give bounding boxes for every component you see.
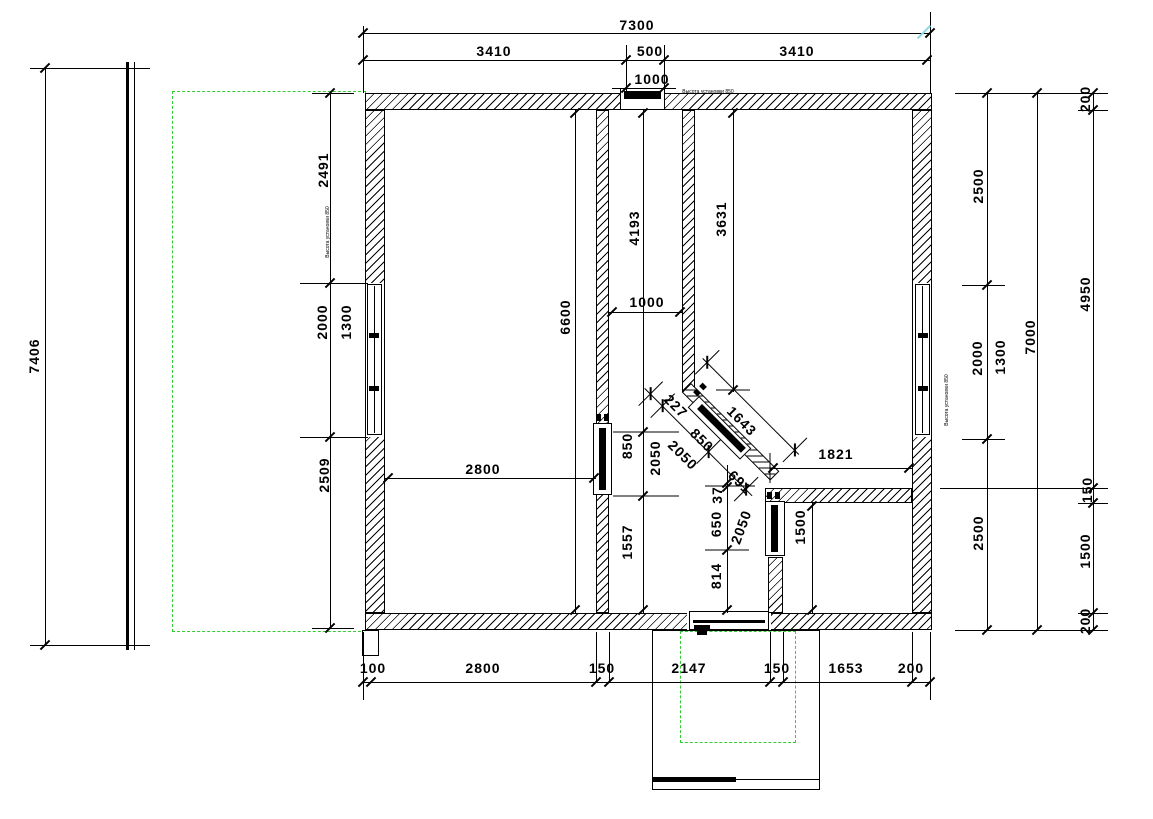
dim-label-right-wall-bottom: 200 bbox=[1077, 608, 1093, 634]
dim-label-left-lower: 2509 bbox=[316, 457, 332, 492]
dim-line-right-room-width bbox=[770, 468, 912, 469]
dim-label-corridor-lower: 1557 bbox=[619, 524, 635, 559]
wall-interior-b bbox=[682, 110, 695, 392]
wall-bottom bbox=[365, 613, 932, 630]
dim-line-right-column-2 bbox=[1037, 93, 1038, 630]
dim-label-left-overall: 7406 bbox=[26, 338, 42, 373]
dim-label-door-a-height: 2050 bbox=[647, 440, 663, 475]
dim-label-bottom-6: 1653 bbox=[828, 660, 863, 676]
dim-label-top-left: 3410 bbox=[476, 43, 511, 59]
dim-label-corridor-upper: 4193 bbox=[626, 210, 642, 245]
dim-label-left-upper: 2491 bbox=[315, 152, 331, 187]
dim-label-top-overall: 7300 bbox=[619, 17, 654, 33]
dim-label-bottom-5: 150 bbox=[764, 660, 790, 676]
dim-label-right-total: 7000 bbox=[1022, 319, 1038, 354]
door-a-hinge-icon-2 bbox=[604, 414, 609, 421]
dim-label-left-room-height: 6600 bbox=[557, 299, 573, 334]
dim-label-bottom-passage: 814 bbox=[708, 563, 724, 589]
dim-label-diag-seg2: 691 bbox=[725, 467, 755, 497]
dim-label-top-center: 500 bbox=[637, 43, 663, 59]
dim-line-corridor-width bbox=[609, 312, 682, 313]
door-c-hinge-icon-2 bbox=[775, 492, 780, 499]
ext-line bbox=[30, 645, 150, 646]
dim-label-right-span-main: 4950 bbox=[1077, 276, 1093, 311]
dim-label-bottom-7: 200 bbox=[898, 660, 924, 676]
dim-label-left-window: 1300 bbox=[338, 304, 354, 339]
dim-label-left-window-opening: 2000 bbox=[314, 304, 330, 339]
door-porch-hinge-icon bbox=[694, 625, 710, 629]
door-c-hinge-icon bbox=[767, 492, 772, 499]
dim-label-right-room-height: 3631 bbox=[713, 201, 729, 236]
dim-line-right-room-height bbox=[733, 110, 734, 392]
wall-corner-pier bbox=[362, 630, 379, 656]
dim-label-corridor-width: 1000 bbox=[629, 294, 664, 310]
annotation-right: Высота установки 850 bbox=[944, 374, 950, 425]
dim-label-right-lower: 2500 bbox=[970, 515, 986, 550]
left-terrace-dashed-outline bbox=[172, 91, 366, 632]
ext-line bbox=[930, 632, 931, 700]
dim-label-right-room-width: 1821 bbox=[818, 446, 853, 462]
ext-line bbox=[783, 438, 808, 463]
dim-label-door-c-height: 2050 bbox=[727, 508, 754, 547]
wall-interior-c bbox=[768, 557, 783, 613]
porch-step-bar bbox=[652, 777, 736, 782]
dim-label-top-right: 3410 bbox=[779, 43, 814, 59]
dim-line-corridor-chain bbox=[643, 110, 644, 613]
window-left-mullion bbox=[369, 333, 379, 338]
dim-label-door-c-width: 650 bbox=[708, 511, 724, 537]
dim-line-right-column-3 bbox=[1093, 93, 1094, 630]
annotation-top: Высота установки 850 bbox=[682, 89, 733, 95]
dim-label-left-room-width: 2800 bbox=[465, 461, 500, 477]
dim-line-right-column-1 bbox=[987, 93, 988, 630]
floor-plan-canvas: 7300 3410 500 3410 1000 Высота установки… bbox=[0, 0, 1153, 819]
dim-line-left-room-height bbox=[575, 110, 576, 613]
dim-label-right-window: 1300 bbox=[992, 339, 1008, 374]
adjacent-wall-line-2 bbox=[134, 62, 135, 650]
vent-bar bbox=[624, 91, 661, 99]
dim-label-bottom-1: 100 bbox=[360, 660, 386, 676]
dim-line-left-overall bbox=[45, 68, 46, 645]
dim-label-bottom-2: 2800 bbox=[465, 660, 500, 676]
door-porch-hinge-icon-2 bbox=[697, 631, 707, 635]
door-porch-leaf bbox=[693, 620, 765, 623]
dim-line-top-overall bbox=[363, 33, 930, 34]
ext-line bbox=[613, 496, 679, 497]
ext-line bbox=[312, 93, 354, 94]
dim-line-bottom bbox=[363, 682, 930, 683]
window-right-glazing-line bbox=[922, 286, 923, 433]
dim-label-right-wall-mid: 150 bbox=[1079, 477, 1095, 503]
dim-label-right-window-opening: 2000 bbox=[969, 340, 985, 375]
window-left-mullion-2 bbox=[369, 386, 379, 391]
dim-line-top-segments bbox=[363, 60, 930, 61]
ext-line bbox=[300, 437, 368, 438]
door-a-hinge-icon bbox=[596, 414, 601, 421]
window-left-glazing-line bbox=[374, 286, 375, 433]
wall-interior-d bbox=[765, 488, 912, 503]
adjacent-wall-line bbox=[126, 62, 129, 650]
dim-line-left-room-width bbox=[385, 478, 596, 479]
window-right-mullion-2 bbox=[918, 386, 928, 391]
dim-label-right-wall-top: 200 bbox=[1077, 86, 1093, 112]
dim-label-door-a-width: 850 bbox=[619, 433, 635, 459]
ext-line bbox=[638, 381, 663, 406]
dim-label-top-vent: 1000 bbox=[634, 71, 669, 87]
door-diagonal-hinge-icon-2 bbox=[699, 383, 707, 391]
dim-line-diagonal-wall bbox=[702, 358, 799, 455]
ext-line bbox=[300, 283, 368, 284]
door-c-leaf bbox=[771, 505, 778, 552]
dim-label-small-room-height: 1500 bbox=[792, 509, 808, 544]
dim-label-gap-small: 37 bbox=[709, 486, 725, 504]
ext-line bbox=[312, 628, 354, 629]
wall-interior-a bbox=[596, 110, 609, 613]
dim-label-bottom-4: 2147 bbox=[671, 660, 706, 676]
ext-line bbox=[695, 350, 720, 375]
dim-label-right-lower-room: 1500 bbox=[1077, 533, 1093, 568]
ext-line bbox=[30, 68, 150, 69]
dim-label-bottom-3: 150 bbox=[589, 660, 615, 676]
dim-line-small-room bbox=[812, 503, 813, 613]
door-a-leaf bbox=[599, 428, 606, 490]
dim-label-right-upper: 2500 bbox=[970, 168, 986, 203]
annotation-left: Высота установки 850 bbox=[325, 206, 331, 257]
dim-line-top-vent bbox=[612, 88, 676, 89]
ext-line bbox=[930, 12, 931, 93]
window-right-mullion bbox=[918, 333, 928, 338]
